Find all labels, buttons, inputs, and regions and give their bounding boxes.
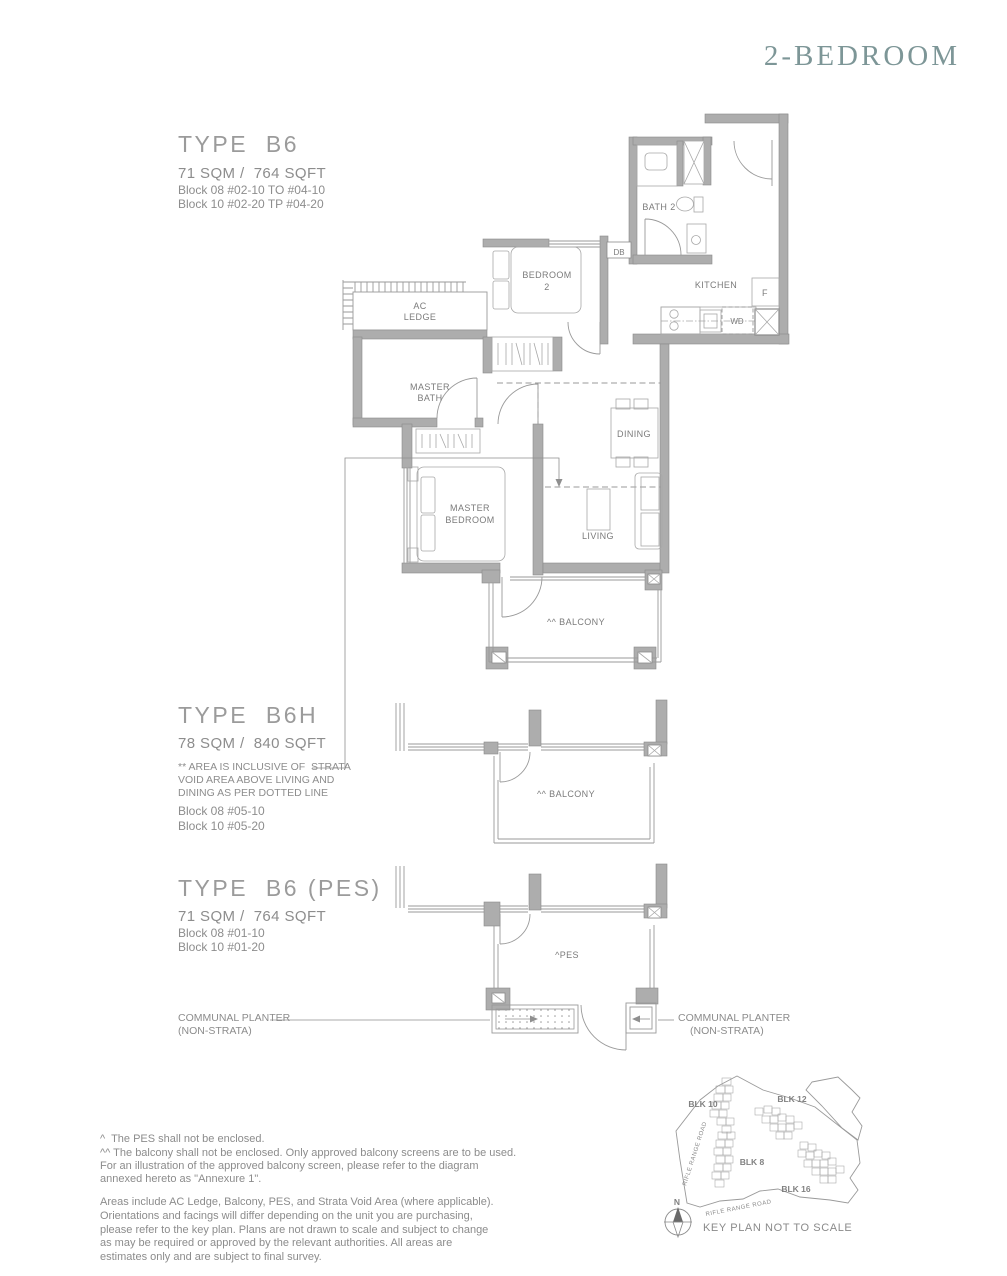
- block-16-units: [798, 1142, 844, 1183]
- plan-type-b6: BATH 2 DB KITCHEN F WD AC LEDGE BEDROOM …: [312, 114, 789, 768]
- type-b6-area: 71 SQM / 764 SQFT: [178, 165, 326, 182]
- type-b6h-note-1: ** AREA IS INCLUSIVE OF STRATA: [178, 761, 351, 773]
- compass-n-label: N: [674, 1197, 680, 1207]
- room-label-masterbath-2: BATH: [418, 393, 443, 403]
- room-label-living: LIVING: [582, 531, 614, 541]
- plan-type-b6h: ^^ BALCONY: [396, 700, 667, 843]
- keyplan-blk8-label: BLK 8: [740, 1157, 765, 1167]
- type-b6h-note-2: VOID AREA ABOVE LIVING AND: [178, 774, 334, 786]
- type-b6pes-heading: TYPE B6 (PES): [178, 875, 382, 902]
- compass-north-icon: [664, 1207, 692, 1237]
- room-label-masterbed-1: MASTER: [450, 503, 490, 513]
- strata-leader-line: [312, 458, 563, 768]
- room-label-dining: DINING: [617, 429, 651, 439]
- room-label-balcony: ^^ BALCONY: [547, 617, 605, 627]
- room-label-masterbath-1: MASTER: [410, 382, 450, 392]
- pes-walls: [484, 864, 667, 1010]
- room-label-bath2: BATH 2: [642, 202, 675, 212]
- keyplan-blk12-label: BLK 12: [777, 1094, 807, 1104]
- fixtures: [408, 141, 779, 663]
- room-label-ac-1: AC: [413, 301, 426, 311]
- planter-label-left-2: (NON-STRATA): [178, 1025, 252, 1038]
- adjacent-parcel: [806, 1077, 862, 1140]
- planter-label-right-1: COMMUNAL PLANTER: [678, 1012, 790, 1025]
- site-boundary: [676, 1076, 860, 1207]
- keyplan-caption: KEY PLAN NOT TO SCALE: [703, 1222, 852, 1234]
- block-8-units: [712, 1132, 735, 1187]
- type-b6pes-block-1: Block 08 #01-10: [178, 926, 265, 940]
- room-label-pes: ^PES: [555, 950, 579, 960]
- footnote-line-1: ^ The PES shall not be enclosed.: [100, 1133, 265, 1145]
- type-b6h-area: 78 SQM / 840 SQFT: [178, 735, 326, 752]
- room-label-kitchen: KITCHEN: [695, 280, 737, 290]
- room-label-wd: WD: [730, 317, 744, 326]
- windows: [353, 241, 661, 662]
- b6h-structure: [396, 703, 654, 843]
- floorplan-page: BATH 2 DB KITCHEN F WD AC LEDGE BEDROOM …: [0, 0, 1007, 1276]
- page-title: 2-BEDROOM: [764, 40, 960, 73]
- room-label-db: DB: [613, 248, 624, 257]
- type-b6-heading: TYPE B6: [178, 131, 299, 158]
- room-label-bedroom2-2: 2: [544, 282, 549, 292]
- footnote-line-2: ^^ The balcony shall not be enclosed. On…: [100, 1147, 516, 1159]
- type-b6-block-1: Block 08 #02-10 TO #04-10: [178, 183, 325, 197]
- footnote-paragraph: Areas include AC Ledge, Balcony, PES, an…: [100, 1196, 498, 1265]
- door-arcs: [437, 140, 772, 617]
- type-b6pes-block-2: Block 10 #01-20: [178, 940, 265, 954]
- type-b6h-block-2: Block 10 #05-20: [178, 819, 265, 833]
- floorplan-svg: BATH 2 DB KITCHEN F WD AC LEDGE BEDROOM …: [0, 0, 1007, 1276]
- planter-label-right-2: (NON-STRATA): [690, 1025, 764, 1038]
- type-b6-block-2: Block 10 #02-20 TP #04-20: [178, 197, 324, 211]
- room-label-bedroom2-1: BEDROOM: [522, 270, 571, 280]
- keyplan-road-left-label: RIFLE RANGE ROAD: [682, 1121, 708, 1187]
- type-b6h-block-1: Block 08 #05-10: [178, 804, 265, 818]
- communal-planter-left: [492, 1005, 578, 1033]
- room-label-fridge: F: [762, 288, 768, 298]
- b6h-walls: [484, 700, 667, 756]
- block-12-units: [755, 1106, 802, 1139]
- type-b6h-heading: TYPE B6H: [178, 702, 318, 729]
- keyplan-blk16-label: BLK 16: [781, 1184, 811, 1194]
- keyplan-blk10-label: BLK 10: [688, 1099, 718, 1109]
- planter-label-left-1: COMMUNAL PLANTER: [178, 1012, 290, 1025]
- room-label-masterbed-2: BEDROOM: [445, 515, 494, 525]
- type-b6h-note-3: DINING AS PER DOTTED LINE: [178, 787, 328, 799]
- room-label-balcony-b6h: ^^ BALCONY: [537, 789, 595, 799]
- type-b6pes-area: 71 SQM / 764 SQFT: [178, 908, 326, 925]
- ac-ledge-hatch: [343, 280, 466, 330]
- footnote-line-3: For an illustration of the approved balc…: [100, 1160, 479, 1172]
- key-plan: BLK 10 BLK 12 BLK 8 BLK 16 RIFLE RANGE R…: [664, 1076, 862, 1237]
- communal-planter-right: [626, 1003, 656, 1033]
- room-label-ac-2: LEDGE: [404, 312, 437, 322]
- footnote-line-4: annexed hereto as "Annexure 1".: [100, 1173, 261, 1185]
